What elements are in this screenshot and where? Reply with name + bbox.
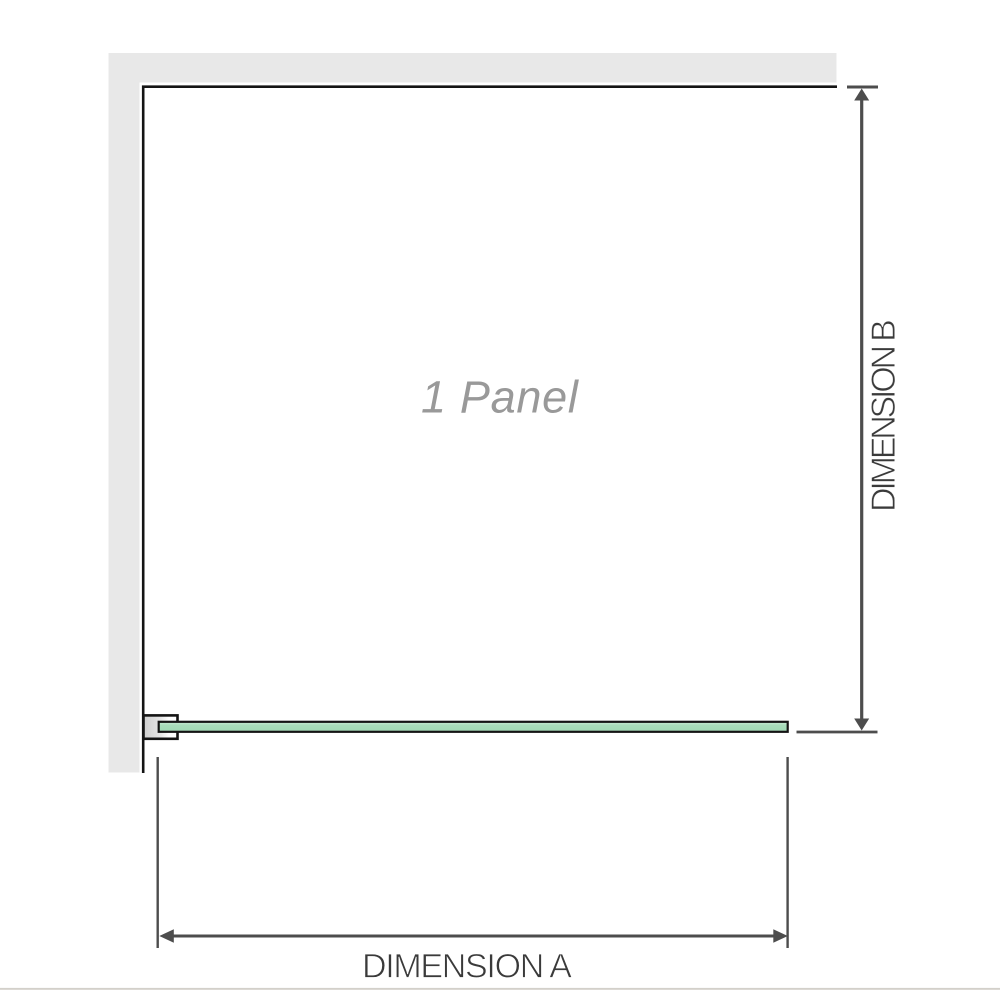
svg-text:DIMENSION A: DIMENSION A	[362, 948, 572, 986]
svg-text:DIMENSION B: DIMENSION B	[865, 321, 903, 512]
svg-text:1 Panel: 1 Panel	[421, 372, 580, 423]
